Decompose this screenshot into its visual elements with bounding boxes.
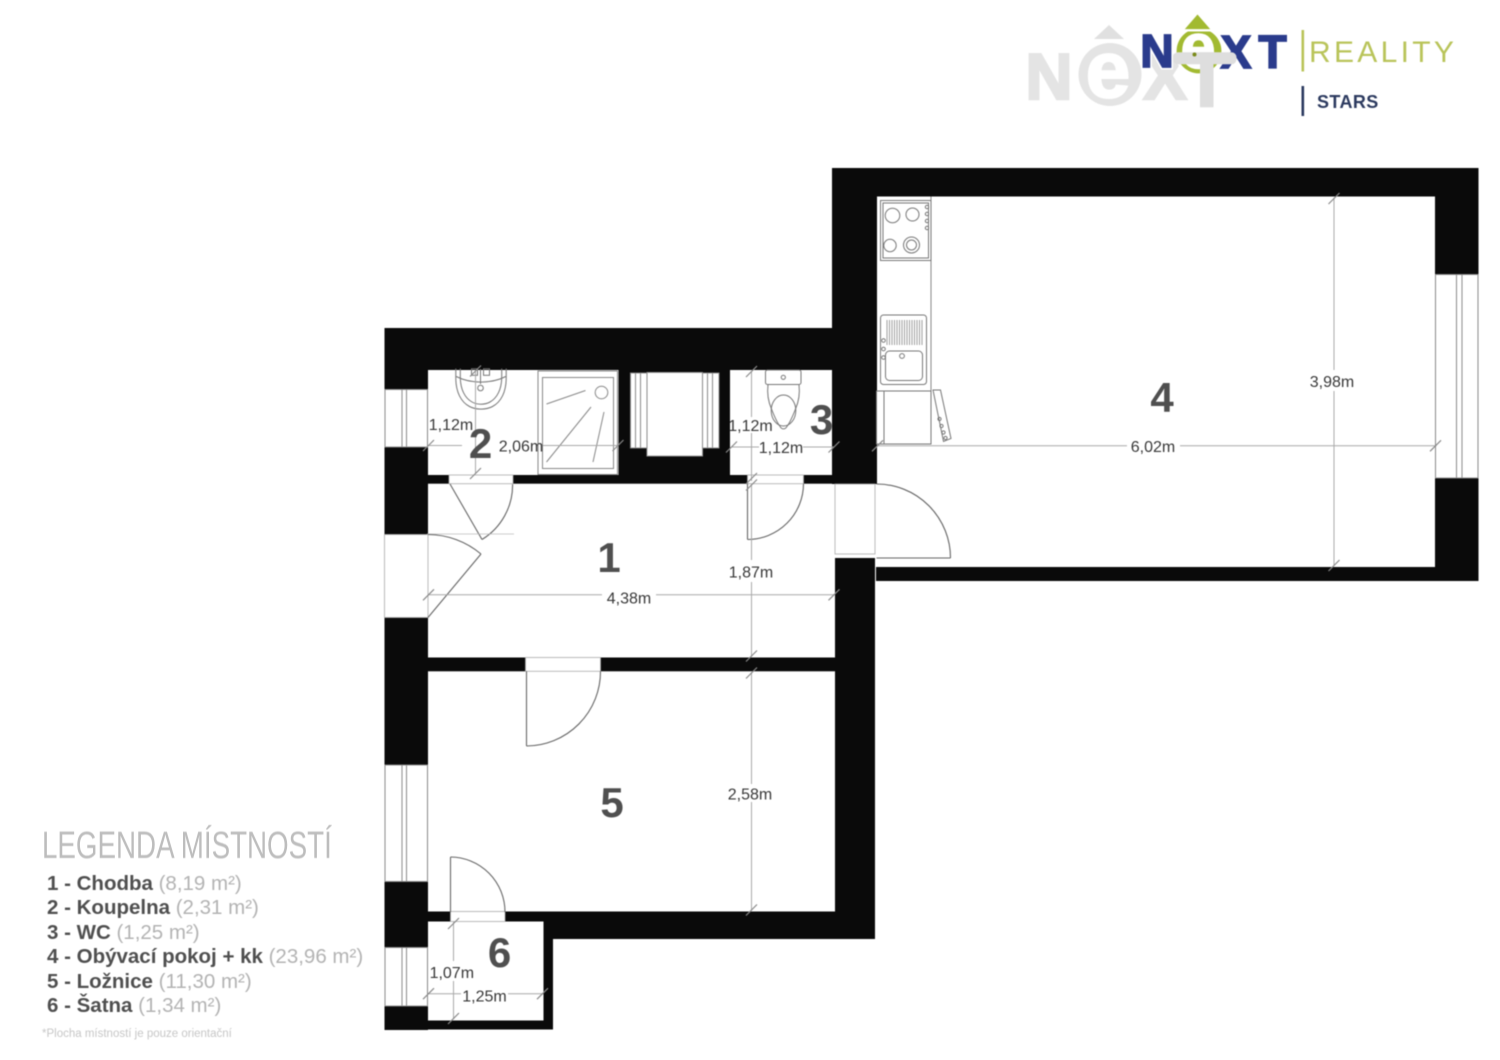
svg-text:STARS: STARS (1317, 92, 1379, 112)
svg-text:N: N (1026, 40, 1073, 113)
svg-text:REALITY: REALITY (1309, 36, 1457, 69)
svg-text:1,12m: 1,12m (728, 418, 772, 435)
svg-text:e: e (1086, 25, 1131, 114)
svg-text:1,12m: 1,12m (759, 440, 803, 457)
svg-text:3: 3 (810, 396, 833, 443)
svg-text:1: 1 (597, 534, 620, 581)
svg-text:X: X (1221, 26, 1252, 78)
svg-text:6: 6 (488, 929, 511, 976)
svg-text:N: N (1140, 25, 1173, 77)
svg-text:5: 5 (600, 779, 623, 826)
svg-text:4,38m: 4,38m (607, 591, 651, 608)
svg-text:1,12m: 1,12m (429, 417, 473, 434)
svg-text:2,58m: 2,58m (728, 787, 772, 804)
svg-text:2,06m: 2,06m (499, 439, 543, 456)
svg-text:1,87m: 1,87m (729, 565, 773, 582)
svg-text:1,07m: 1,07m (430, 965, 474, 982)
svg-text:T: T (1258, 26, 1286, 78)
svg-text:4: 4 (1150, 374, 1174, 421)
svg-text:3,98m: 3,98m (1310, 374, 1354, 391)
svg-text:6,02m: 6,02m (1131, 439, 1175, 456)
svg-text:1,25m: 1,25m (462, 989, 506, 1006)
